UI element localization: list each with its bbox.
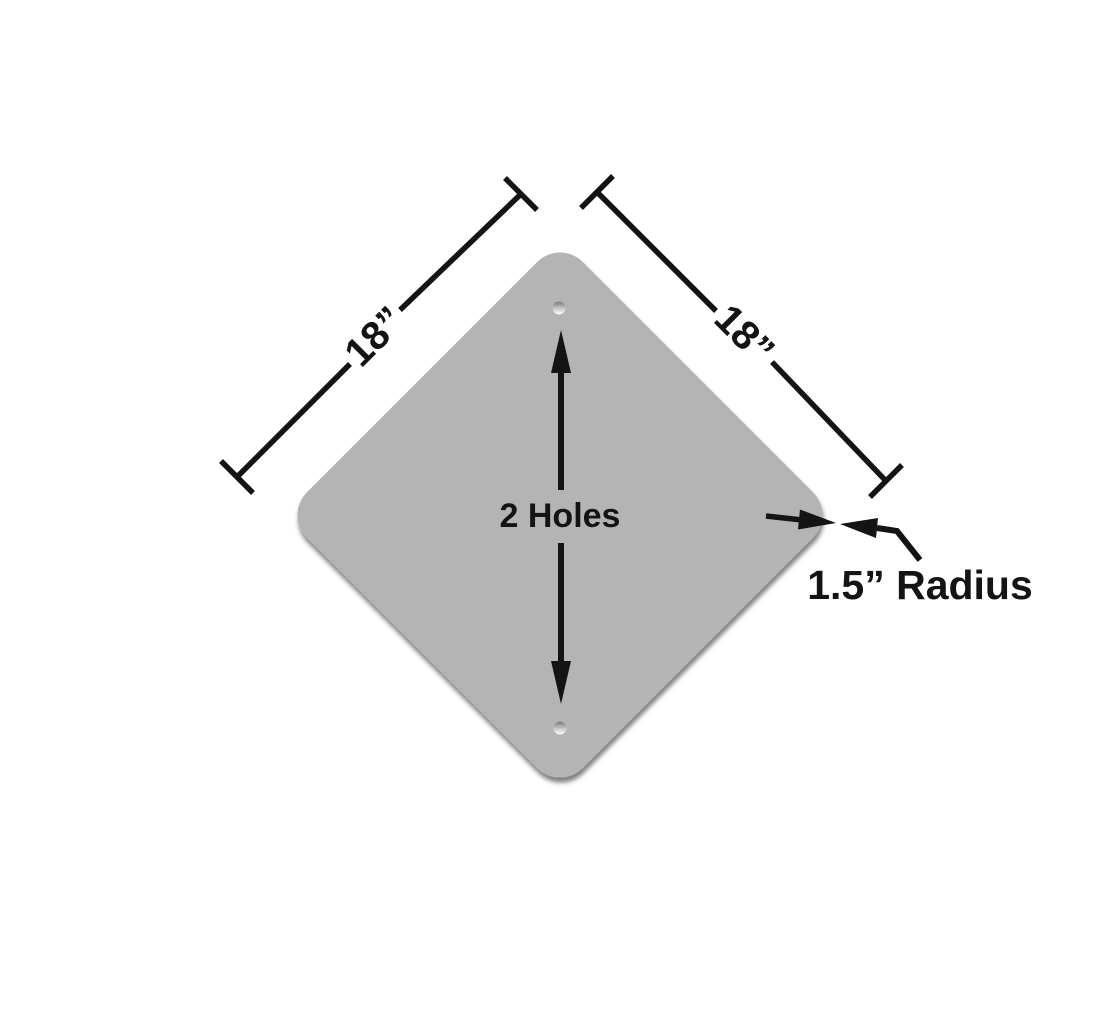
sign-blank-diagram: 18” 18” 2 Holes 1.5” Radius xyxy=(0,0,1120,1020)
bottom-hole xyxy=(554,722,567,735)
left-dimension-line-upper xyxy=(400,194,521,310)
radius-leader-line xyxy=(877,528,920,560)
diagram-stage: 18” 18” 2 Holes 1.5” Radius xyxy=(0,0,1120,1020)
radius-label: 1.5” Radius xyxy=(807,562,1033,608)
right-dimension-line-lower xyxy=(772,362,886,481)
left-dimension-line-lower xyxy=(237,364,350,477)
radius-arrowhead-outer xyxy=(840,518,878,538)
top-hole xyxy=(553,302,566,315)
holes-label: 2 Holes xyxy=(500,497,621,535)
right-dimension-label: 18” xyxy=(706,296,783,373)
right-dimension-line-upper xyxy=(597,192,716,311)
radius-callout: 1.5” Radius xyxy=(766,510,1033,609)
